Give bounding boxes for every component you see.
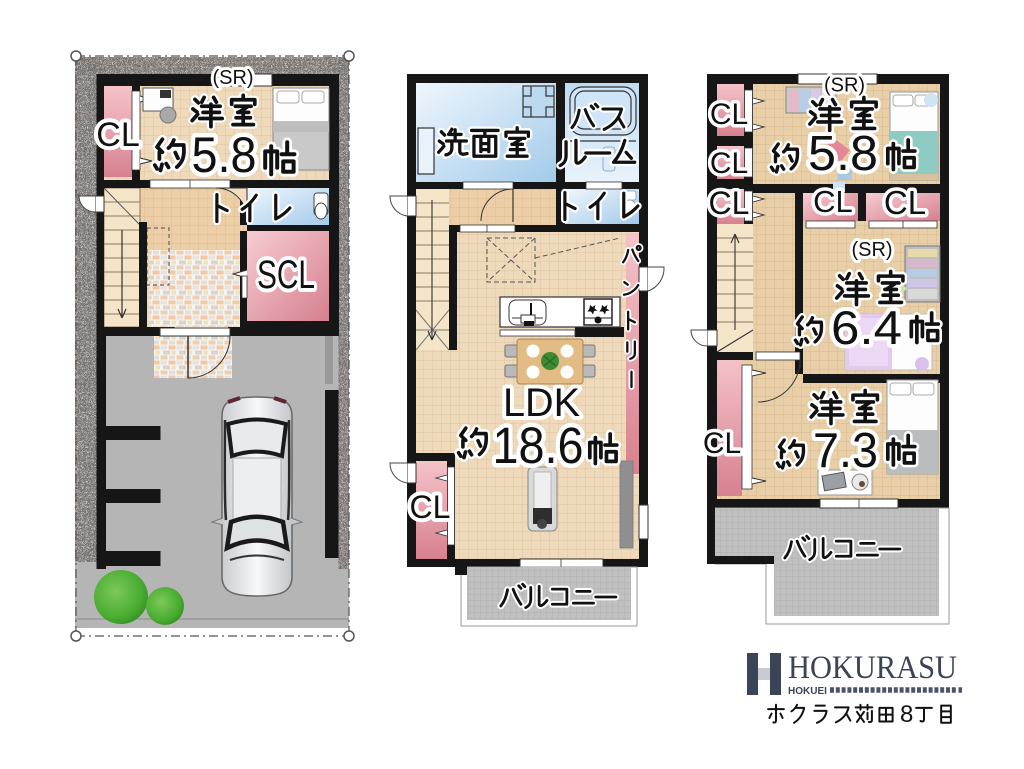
svg-text:CL: CL xyxy=(410,489,451,525)
svg-text:18.6: 18.6 xyxy=(493,417,584,474)
svg-text:CL: CL xyxy=(709,185,750,221)
svg-text:CL: CL xyxy=(884,184,926,221)
svg-text:(SR): (SR) xyxy=(212,67,253,89)
svg-text:(SR): (SR) xyxy=(851,239,892,261)
svg-text:CL: CL xyxy=(96,116,139,154)
svg-text:CL: CL xyxy=(710,98,748,131)
svg-text:6.4: 6.4 xyxy=(831,301,902,354)
svg-text:HOKUEI: HOKUEI xyxy=(788,686,827,697)
svg-text:CL: CL xyxy=(703,427,741,460)
svg-text:HOKURASU: HOKURASU xyxy=(788,650,957,686)
svg-text:8: 8 xyxy=(900,701,913,728)
svg-text:CL: CL xyxy=(710,147,748,180)
svg-text:7.3: 7.3 xyxy=(813,424,878,478)
svg-text:SCL: SCL xyxy=(257,253,315,297)
svg-text:5.8: 5.8 xyxy=(808,127,878,181)
svg-text:(SR): (SR) xyxy=(824,75,865,97)
svg-text:CL: CL xyxy=(813,184,853,219)
svg-text:5.8: 5.8 xyxy=(192,127,257,183)
